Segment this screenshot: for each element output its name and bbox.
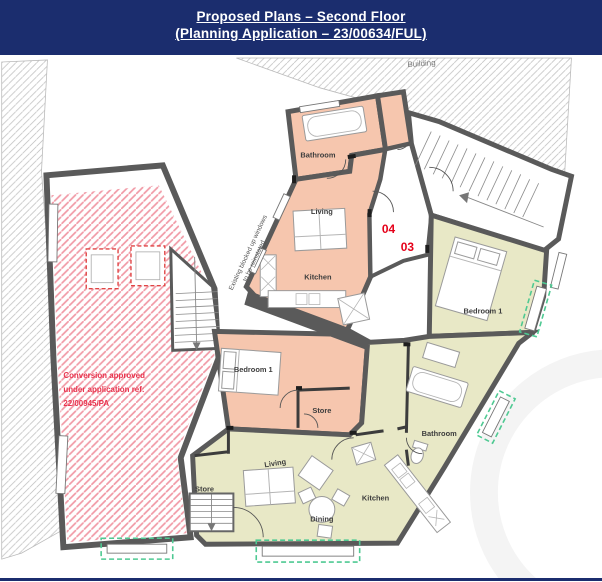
floor-plan-container: Building Conversion approved under appli… xyxy=(0,55,602,579)
unit-03-label: 03 xyxy=(401,240,415,254)
flat04-living-label: Living xyxy=(311,207,333,216)
faint-site-curve xyxy=(484,363,602,579)
flat04-store-mid-label: Store xyxy=(312,406,331,415)
svg-text:Conversion approved: Conversion approved xyxy=(63,371,145,380)
page: Proposed Plans – Second Floor (Planning … xyxy=(0,0,602,582)
flat04-bathroom-label: Bathroom xyxy=(300,150,336,159)
flat03-store-label: Store xyxy=(195,485,214,494)
title-line-2: (Planning Application – 23/00634/FUL) xyxy=(0,25,602,42)
title-banner: Proposed Plans – Second Floor (Planning … xyxy=(0,0,602,55)
svg-text:under application ref:: under application ref: xyxy=(63,385,144,394)
flat03-dining-label: Dining xyxy=(310,514,334,523)
flat04-store-top-room xyxy=(378,92,412,150)
svg-text:22/00945/PA: 22/00945/PA xyxy=(63,399,109,408)
flat04-kitchen-label: Kitchen xyxy=(304,273,332,282)
floor-plan-drawing: Building Conversion approved under appli… xyxy=(0,55,602,579)
flat03-kitchen-label: Kitchen xyxy=(362,493,390,502)
flat03-bedroom1-label: Bedroom 1 xyxy=(464,307,503,316)
title-line-1: Proposed Plans – Second Floor xyxy=(0,8,602,25)
bottom-border-line xyxy=(0,578,602,581)
unit-04-label: 04 xyxy=(382,222,396,236)
flat03-sofa xyxy=(243,467,295,506)
stair-window xyxy=(550,252,566,289)
flat04-bedroom1-label: Bedroom 1 xyxy=(234,365,273,374)
flat03-bathroom-label: Bathroom xyxy=(422,429,458,438)
